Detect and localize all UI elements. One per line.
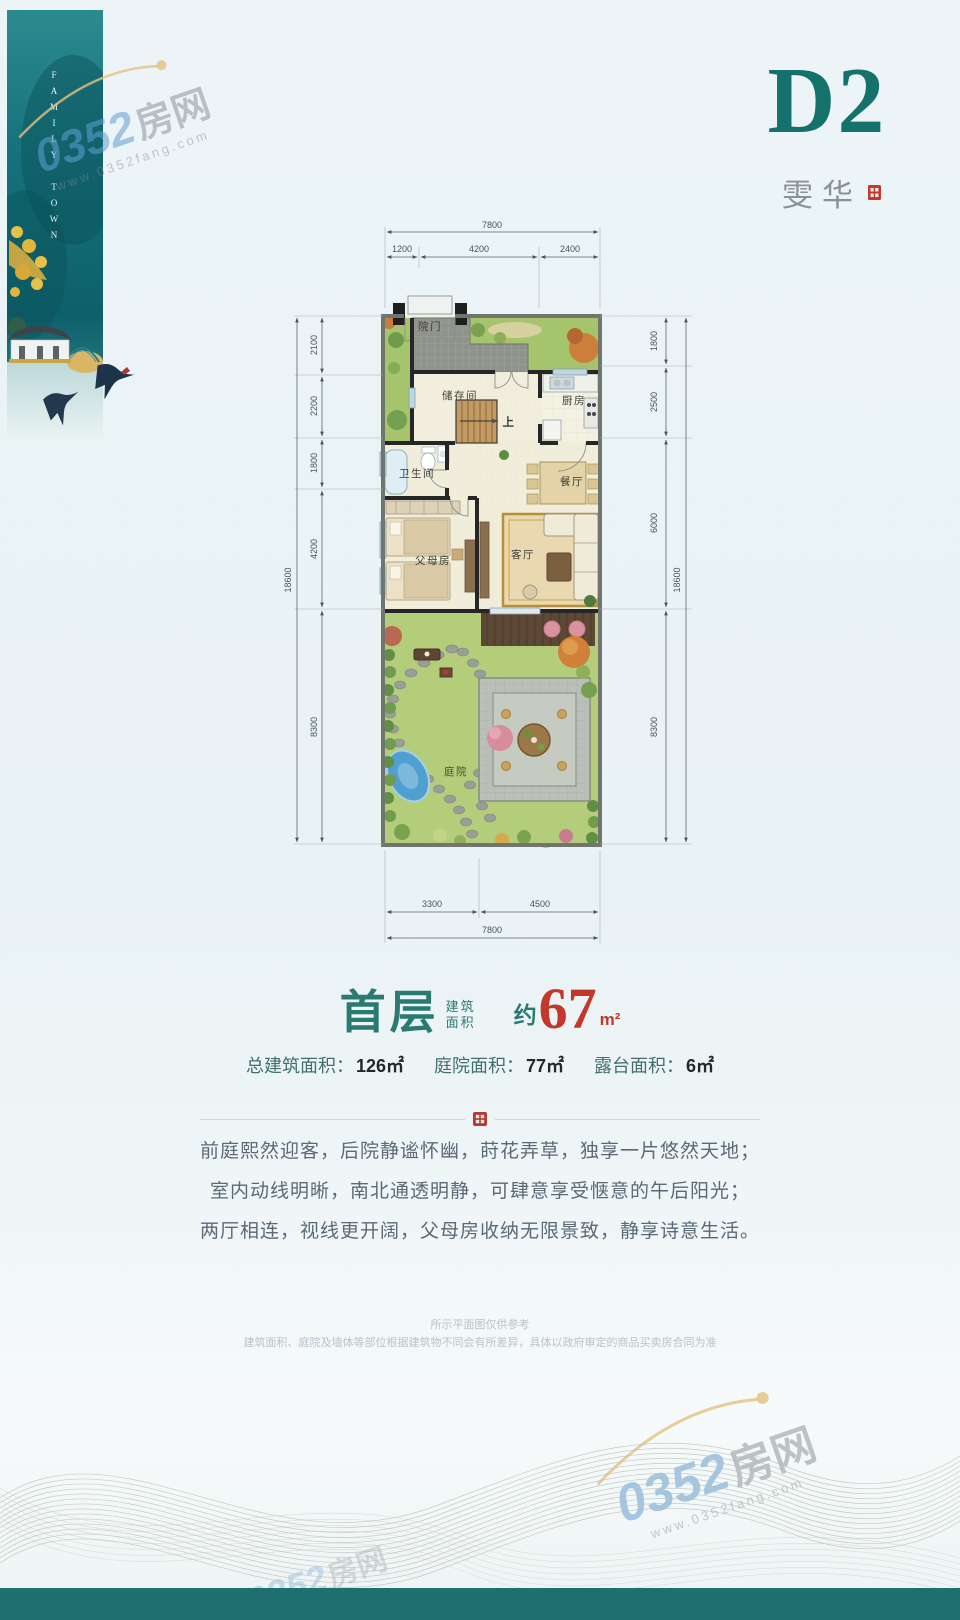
swallow-birds	[8, 340, 168, 448]
dim-bottom-total: 7800	[482, 925, 502, 935]
disclaimer: 所示平面图仅供参考 建筑面积、庭院及墙体等部位根据建筑物不同会有所差异，具体以政…	[0, 1316, 960, 1352]
dim-left-seg: 1800	[309, 453, 319, 473]
section-divider	[200, 1112, 760, 1126]
room-label-up: 上	[503, 415, 516, 429]
floor-sub-bottom: 面积	[446, 1015, 476, 1031]
area-unit: m²	[600, 1010, 621, 1030]
plant	[499, 450, 509, 460]
room-label-storage: 储存间	[442, 389, 478, 402]
area-value: 67	[539, 984, 597, 1033]
dim-right-seg: 6000	[649, 513, 659, 533]
dim-top-total: 7800	[482, 220, 502, 230]
dim-bottom-seg: 4500	[530, 899, 550, 909]
description-line: 前庭熙然迎客，后院静谧怀幽，莳花弄草，独享一片悠然天地；	[130, 1142, 830, 1161]
room-label-dining: 餐厅	[560, 475, 584, 488]
dim-right-total: 18600	[672, 567, 682, 592]
footer-bar	[0, 1588, 960, 1620]
stat-item: 总建筑面积：126㎡	[246, 1052, 404, 1078]
area-stats: 总建筑面积：126㎡ 庭院面积：77㎡ 露台面积：6㎡	[0, 1052, 960, 1078]
floor-label: 首层	[340, 992, 440, 1033]
room-label-kitchen: 厨房	[562, 394, 586, 407]
dim-top-seg: 2400	[560, 244, 580, 254]
dim-right-seg: 1800	[649, 331, 659, 351]
dim-top-seg: 4200	[469, 244, 489, 254]
watermark-suffix: 房网	[131, 85, 215, 146]
unit-code: D2	[742, 52, 912, 151]
dim-left-seg: 2100	[309, 335, 319, 355]
dim-left-seg: 8300	[309, 717, 319, 737]
description-line: 两厅相连，视线更开阔，父母房收纳无限景致，静享诗意生活。	[130, 1222, 830, 1241]
dim-left-seg: 2200	[309, 396, 319, 416]
dim-left-total: 18600	[283, 567, 293, 592]
unit-name: 雯华	[773, 170, 862, 215]
room-label-gate: 院门	[418, 320, 442, 333]
banner-vertical-text: FAMILY TOWN	[49, 70, 59, 246]
dim-top-seg: 1200	[392, 244, 412, 254]
approx-label: 约	[514, 996, 537, 1030]
stat-item: 庭院面积：77㎡	[434, 1052, 564, 1078]
floor-area-summary: 首层 建筑 面积 约 67 m²	[0, 984, 960, 1033]
dim-right-seg: 2500	[649, 392, 659, 412]
room-label-parents: 父母房	[415, 554, 451, 567]
dim-right-seg: 8300	[649, 717, 659, 737]
description-line: 室内动线明晰，南北通透明静，可肆意享受惬意的午后阳光；	[130, 1182, 830, 1201]
seal-stamp-icon	[868, 185, 881, 200]
divider-seal-icon	[473, 1112, 487, 1126]
wave-decoration	[0, 1368, 960, 1590]
disclaimer-line: 建筑面积、庭院及墙体等部位根据建筑物不同会有所差异，具体以政府审定的商品买卖房合…	[0, 1334, 960, 1352]
dim-bottom-seg: 3300	[422, 899, 442, 909]
floor-plan: 院门 储存间 上 厨房 卫生间 餐厅 父母房 客厅 庭院	[260, 210, 710, 955]
room-label-bathroom: 卫生间	[399, 467, 435, 480]
dim-left-seg: 4200	[309, 539, 319, 559]
stat-item: 露台面积：6㎡	[594, 1052, 714, 1078]
floor-sub-top: 建筑	[446, 999, 476, 1015]
room-label-living: 客厅	[511, 548, 535, 561]
stairs	[456, 400, 498, 443]
disclaimer-line: 所示平面图仅供参考	[0, 1316, 960, 1334]
room-label-courtyard: 庭院	[444, 765, 468, 778]
marketing-description: 前庭熙然迎客，后院静谧怀幽，莳花弄草，独享一片悠然天地； 室内动线明晰，南北通透…	[130, 1142, 830, 1262]
